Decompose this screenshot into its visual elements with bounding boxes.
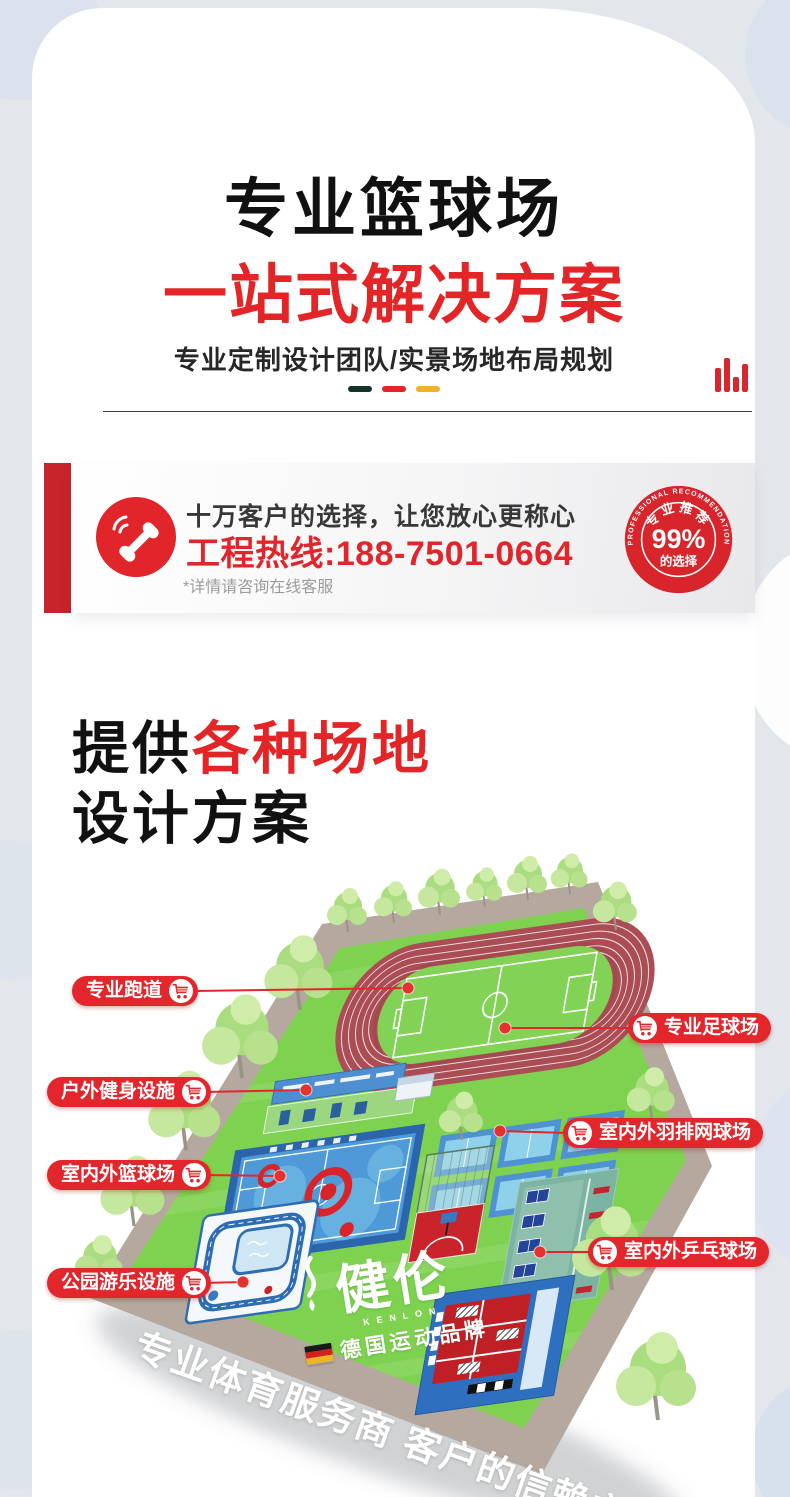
hero-subtitle: 专业定制设计团队/实景场地布局规划 <box>33 340 755 377</box>
label-text: 室内外羽排网球场 <box>599 1118 751 1148</box>
dash-yellow <box>416 386 440 392</box>
label-text: 专业跑道 <box>86 976 162 1006</box>
divider-line <box>103 411 752 412</box>
hero-dashes <box>33 386 755 392</box>
phone-icon <box>96 497 176 582</box>
label-badminton-courts[interactable]: 室内外羽排网球场 <box>563 1118 763 1148</box>
cart-icon <box>568 1121 592 1145</box>
cart-icon <box>593 1240 617 1264</box>
label-running-track[interactable]: 专业跑道 <box>72 976 198 1006</box>
bg-blob <box>752 1380 790 1497</box>
bar-chart-icon <box>714 352 754 399</box>
cart-icon <box>182 1080 206 1104</box>
heading-red: 各种场地 <box>192 717 432 781</box>
heading-black: 提供 <box>72 717 192 781</box>
dash-red <box>382 386 406 392</box>
badge-choice: 的选择 <box>660 553 698 568</box>
label-park-amusement[interactable]: 公园游乐设施 <box>47 1268 211 1298</box>
banner-red-strip <box>44 463 71 613</box>
label-basketball-court[interactable]: 室内外篮球场 <box>47 1160 211 1190</box>
cart-icon <box>169 979 193 1003</box>
cart-icon <box>182 1163 206 1187</box>
hero-title: 专业篮球场 <box>33 158 755 250</box>
badge-percent: 99% <box>652 524 706 554</box>
label-table-tennis[interactable]: 室内外乒乓球场 <box>588 1237 769 1267</box>
dash-dark <box>348 386 372 392</box>
label-text: 室内外篮球场 <box>61 1160 175 1190</box>
section-heading-line2: 设计方案 <box>72 773 312 855</box>
hotline-note: *详情请咨询在线客服 <box>183 573 333 597</box>
flame-logo-icon <box>288 1253 333 1316</box>
label-outdoor-fitness[interactable]: 户外健身设施 <box>47 1077 211 1107</box>
bg-blob <box>745 0 790 140</box>
hotline-number[interactable]: 工程热线:188-7501-0664 <box>186 526 573 575</box>
hotline-label: 工程热线: <box>186 535 336 573</box>
promo-page: 专业篮球场 一站式解决方案 专业定制设计团队/实景场地布局规划 <box>0 0 790 1497</box>
label-text: 室内外乒乓球场 <box>624 1237 757 1267</box>
label-soccer-field[interactable]: 专业足球场 <box>628 1013 771 1043</box>
label-text: 户外健身设施 <box>61 1077 175 1107</box>
label-text: 专业足球场 <box>664 1013 759 1043</box>
recommendation-badge: PROFESSIONAL RECOMMENDATION 专业推荐 99% 的选择 <box>621 482 736 602</box>
german-flag-icon <box>304 1342 334 1365</box>
hotline-phone-digits: 188-7501-0664 <box>336 535 573 573</box>
hero-title-red: 一站式解决方案 <box>33 244 755 336</box>
cart-icon <box>182 1271 206 1295</box>
label-text: 公园游乐设施 <box>61 1268 175 1298</box>
cart-icon <box>633 1016 657 1040</box>
